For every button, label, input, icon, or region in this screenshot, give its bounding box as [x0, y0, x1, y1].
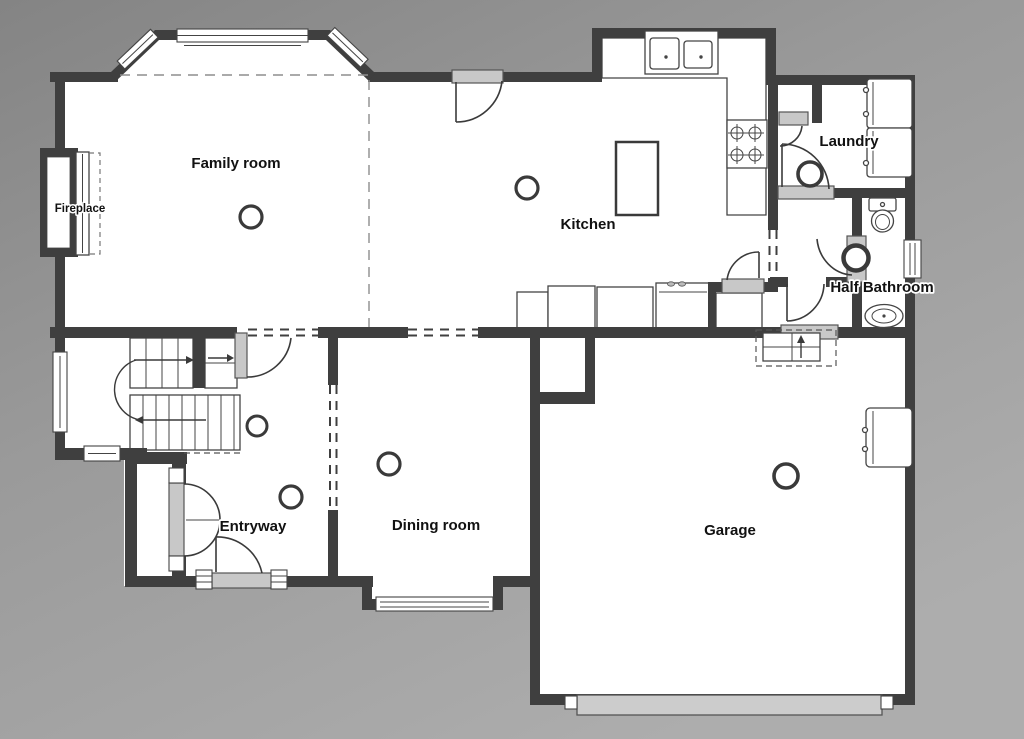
laundry-light	[798, 162, 822, 186]
garage-door	[565, 695, 893, 715]
pantry-shelf	[716, 293, 762, 328]
family-room-door-panel	[235, 333, 247, 378]
toilet	[869, 198, 896, 232]
floor-plan-svg: Family room Fireplace Kitchen Laundry Ha…	[0, 0, 1024, 739]
garage-label: Garage	[704, 522, 756, 539]
back-door-panel	[452, 70, 503, 83]
family-room-light	[240, 206, 262, 228]
fireplace-label: Fireplace	[55, 203, 106, 215]
dining-room-light	[378, 453, 400, 475]
front-door-panel	[212, 573, 272, 588]
closet-door-panel	[169, 483, 184, 556]
laundry-closet-door-panel	[779, 112, 808, 125]
family-room-label: Family room	[191, 155, 280, 172]
dining-window	[376, 597, 493, 611]
hall-light	[247, 416, 267, 436]
washer	[864, 79, 913, 128]
entryway-label: Entryway	[220, 518, 287, 535]
garage-light	[774, 464, 798, 488]
half-bathroom-label: Half Bathroom	[830, 279, 933, 296]
laundry-door-panel	[778, 186, 834, 199]
kitchen-island	[616, 142, 658, 215]
dining-room-label: Dining room	[392, 517, 480, 534]
entry-side-window	[84, 446, 120, 461]
pantry-door-panel	[722, 279, 764, 293]
kitchen-light	[516, 177, 538, 199]
stair-hall-window	[53, 352, 67, 432]
half-bath-window	[904, 240, 921, 278]
kitchen-double-sink	[645, 31, 718, 74]
kitchen-label: Kitchen	[560, 216, 615, 233]
entryway-light	[280, 486, 302, 508]
half-bath-light	[844, 246, 869, 271]
water-heater	[863, 408, 913, 467]
appliance-range	[656, 282, 710, 328]
vanity-sink	[865, 305, 903, 328]
floor-plan-canvas: Family room Fireplace Kitchen Laundry Ha…	[0, 0, 1024, 739]
laundry-label: Laundry	[819, 133, 879, 150]
cooktop	[727, 120, 767, 168]
